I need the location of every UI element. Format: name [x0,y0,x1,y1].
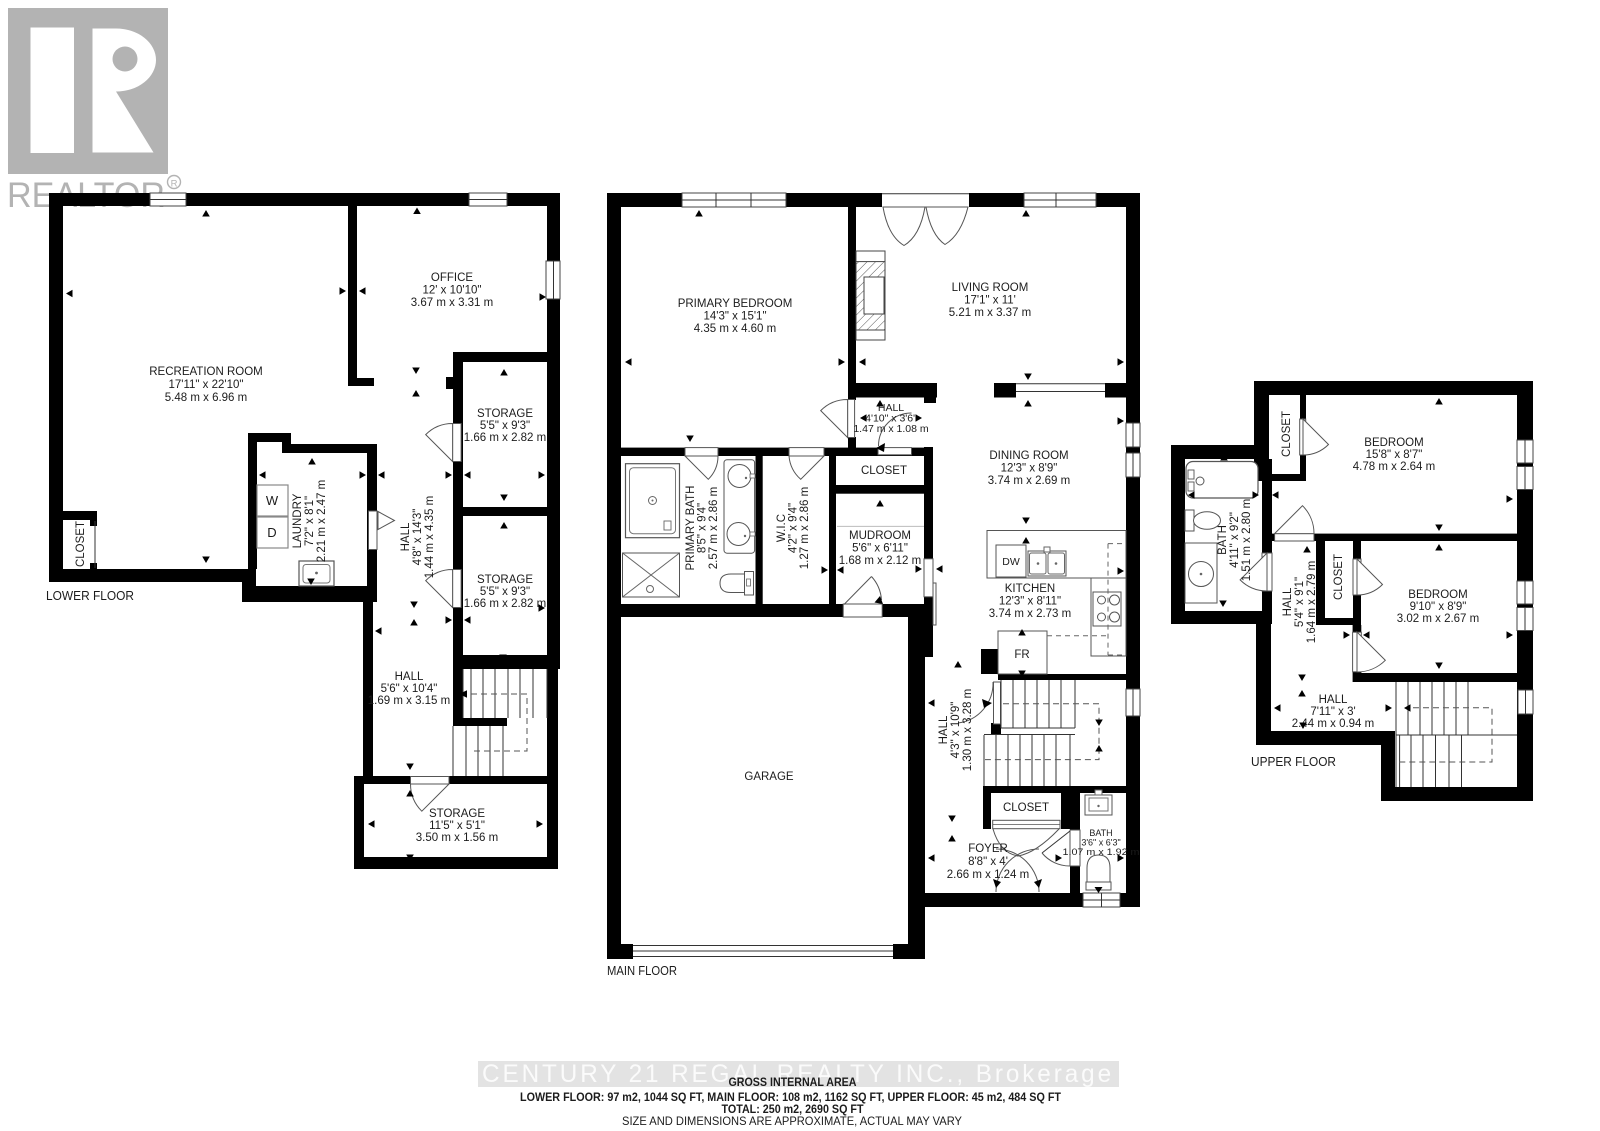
svg-text:R: R [171,179,178,190]
svg-text:1.66 m x 2.82 m: 1.66 m x 2.82 m [464,432,546,444]
svg-text:3.50 m x 1.56 m: 3.50 m x 1.56 m [416,832,498,844]
svg-text:17'1" x 11': 17'1" x 11' [964,295,1016,307]
svg-text:HALL: HALL [1282,587,1294,616]
svg-text:4'11" x 9'2": 4'11" x 9'2" [1229,512,1241,568]
svg-text:BEDROOM: BEDROOM [1364,437,1423,449]
svg-text:KITCHEN: KITCHEN [1005,583,1055,595]
svg-text:MUDROOM: MUDROOM [849,530,911,542]
svg-text:UPPER FLOOR: UPPER FLOOR [1251,755,1336,769]
svg-text:STORAGE: STORAGE [477,574,533,586]
svg-text:2.21 m x 2.47 m: 2.21 m x 2.47 m [316,480,328,562]
svg-text:14'3" x 15'1": 14'3" x 15'1" [703,311,766,323]
svg-text:2.57 m x 2.86 m: 2.57 m x 2.86 m [708,487,720,569]
svg-text:BEDROOM: BEDROOM [1408,589,1467,601]
svg-text:4.78 m x 2.64 m: 4.78 m x 2.64 m [1353,461,1435,473]
svg-text:1.27 m x 2.86 m: 1.27 m x 2.86 m [799,487,811,569]
svg-text:1.47 m x 1.08 m: 1.47 m x 1.08 m [853,423,929,435]
svg-text:17'11" x 22'10": 17'11" x 22'10" [168,379,243,391]
svg-text:11'5" x 5'1": 11'5" x 5'1" [429,820,485,832]
svg-text:1.66 m x 2.82 m: 1.66 m x 2.82 m [464,598,546,610]
svg-text:1.44 m x 4.35 m: 1.44 m x 4.35 m [424,496,436,578]
svg-text:W.I.C: W.I.C [776,514,788,542]
svg-text:CLOSET: CLOSET [1333,554,1345,600]
svg-text:3.02 m x 2.67 m: 3.02 m x 2.67 m [1397,613,1479,625]
svg-text:RECREATION ROOM: RECREATION ROOM [149,366,263,378]
svg-text:12'3" x 8'9": 12'3" x 8'9" [1001,463,1058,475]
svg-text:FOYER: FOYER [968,843,1008,855]
svg-text:1.30 m x 3.28 m: 1.30 m x 3.28 m [962,689,974,771]
svg-text:PRIMARY BEDROOM: PRIMARY BEDROOM [678,298,793,310]
svg-text:3.67 m x 3.31 m: 3.67 m x 3.31 m [411,297,493,309]
svg-text:PRIMARY BATH: PRIMARY BATH [685,486,697,571]
svg-text:4.35 m x 4.60 m: 4.35 m x 4.60 m [694,323,776,335]
svg-text:4'2" x 9'4": 4'2" x 9'4" [788,503,800,553]
svg-text:12'3" x 8'11": 12'3" x 8'11" [999,596,1061,608]
svg-text:4'8" x 14'3": 4'8" x 14'3" [412,509,424,566]
svg-text:LOWER FLOOR: LOWER FLOOR [46,589,134,603]
svg-text:OFFICE: OFFICE [431,272,473,284]
svg-text:CLOSET: CLOSET [1281,411,1293,457]
svg-text:HALL: HALL [400,522,412,551]
svg-text:1.64 m x 2.79 m: 1.64 m x 2.79 m [1306,561,1318,643]
svg-text:DINING ROOM: DINING ROOM [989,450,1068,462]
svg-text:7'2" x 8'1": 7'2" x 8'1" [304,496,316,546]
svg-text:7'11" x 3': 7'11" x 3' [1310,706,1355,718]
svg-text:1.68 m x 2.12 m: 1.68 m x 2.12 m [839,555,921,567]
svg-text:1.07 m x 1.92 m: 1.07 m x 1.92 m [1063,847,1140,857]
svg-text:5'4" x 9'1": 5'4" x 9'1" [1294,577,1306,627]
svg-text:5'6" x 6'11": 5'6" x 6'11" [852,543,908,555]
svg-text:1.51 m x 2.80 m: 1.51 m x 2.80 m [1241,499,1253,581]
svg-text:9'10" x 8'9": 9'10" x 8'9" [1410,601,1467,613]
svg-text:8'5" x 9'4": 8'5" x 9'4" [697,503,709,553]
svg-text:HALL: HALL [938,715,950,744]
svg-text:STORAGE: STORAGE [477,408,533,420]
svg-text:DW: DW [1002,556,1020,568]
svg-text:3'6" x 6'3": 3'6" x 6'3" [1081,838,1120,848]
svg-text:GROSS INTERNAL AREA: GROSS INTERNAL AREA [729,1075,857,1089]
svg-text:MAIN FLOOR: MAIN FLOOR [607,964,677,978]
svg-text:4'3" x 10'9": 4'3" x 10'9" [950,702,962,759]
svg-text:5'5" x 9'3": 5'5" x 9'3" [480,586,530,598]
svg-text:CLOSET: CLOSET [861,465,907,477]
svg-text:LAUNDRY: LAUNDRY [292,493,304,548]
svg-text:1.69 m x 3.15 m: 1.69 m x 3.15 m [368,695,450,707]
svg-text:HALL: HALL [395,671,424,683]
svg-text:HALL: HALL [1319,694,1348,706]
svg-text:15'8" x 8'7": 15'8" x 8'7" [1366,449,1423,461]
svg-text:BATH: BATH [1089,828,1112,838]
svg-text:3.74 m x 2.69 m: 3.74 m x 2.69 m [988,475,1070,487]
svg-text:GARAGE: GARAGE [744,771,794,783]
svg-text:LIVING ROOM: LIVING ROOM [952,282,1029,294]
svg-text:8'8" x 4': 8'8" x 4' [968,856,1008,868]
svg-text:2.66 m x 1.24 m: 2.66 m x 1.24 m [947,869,1029,881]
svg-text:BATH: BATH [1217,525,1229,555]
svg-text:5'5" x 9'3": 5'5" x 9'3" [480,420,530,432]
svg-text:3.74 m x 2.73 m: 3.74 m x 2.73 m [989,608,1071,620]
svg-text:5'6" x 10'4": 5'6" x 10'4" [381,683,438,695]
svg-text:12' x 10'10": 12' x 10'10" [423,285,482,297]
svg-text:W: W [266,493,279,508]
svg-text:SIZE AND DIMENSIONS ARE APPROX: SIZE AND DIMENSIONS ARE APPROXIMATE, ACT… [622,1114,962,1128]
svg-text:5.21 m x 3.37 m: 5.21 m x 3.37 m [949,307,1031,319]
svg-text:FR: FR [1014,649,1029,661]
svg-text:CLOSET: CLOSET [75,521,87,567]
svg-text:D: D [267,525,276,540]
svg-text:CLOSET: CLOSET [1003,802,1049,814]
svg-text:STORAGE: STORAGE [429,808,485,820]
svg-text:5.48 m x 6.96 m: 5.48 m x 6.96 m [165,392,247,404]
